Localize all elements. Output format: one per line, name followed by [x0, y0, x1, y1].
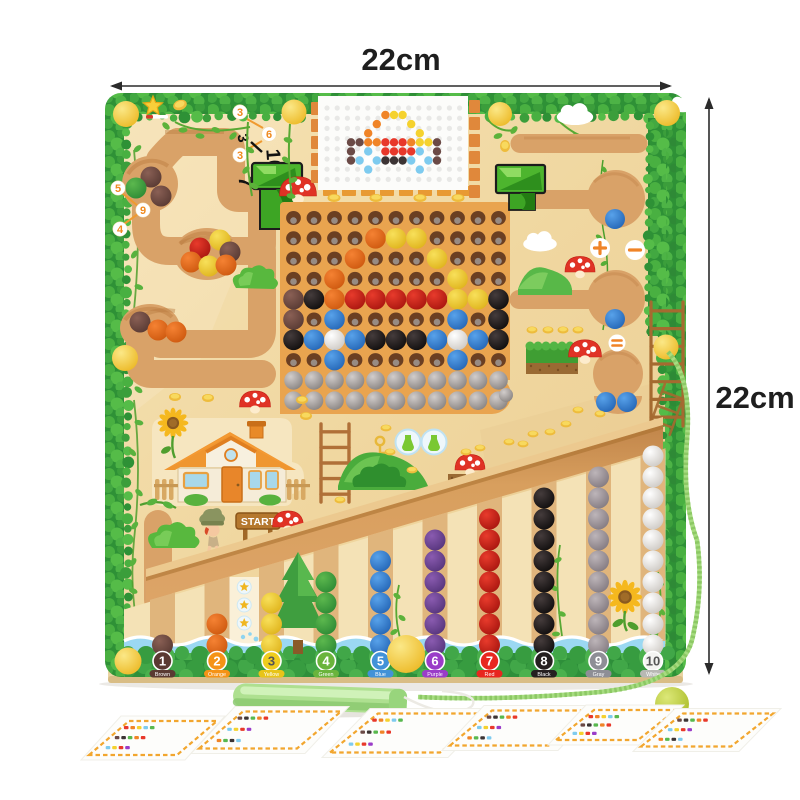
svg-text:1: 1 [159, 654, 166, 669]
svg-text:Gray: Gray [593, 672, 605, 678]
svg-text:Red: Red [485, 672, 495, 678]
svg-text:4: 4 [322, 654, 330, 669]
svg-text:Orange: Orange [208, 672, 226, 678]
svg-text:3: 3 [237, 150, 243, 162]
svg-text:6: 6 [431, 654, 438, 669]
svg-text:7: 7 [486, 654, 493, 669]
svg-text:8: 8 [540, 654, 547, 669]
svg-text:2: 2 [213, 654, 220, 669]
svg-text:22cm: 22cm [715, 380, 794, 415]
svg-text:START: START [241, 516, 276, 528]
svg-text:9: 9 [140, 205, 146, 217]
svg-text:5: 5 [377, 654, 384, 669]
svg-text:3: 3 [237, 107, 243, 119]
svg-text:5: 5 [115, 183, 121, 195]
svg-text:22cm: 22cm [361, 42, 440, 77]
svg-text:3: 3 [268, 654, 275, 669]
svg-text:Purple: Purple [427, 672, 443, 678]
svg-text:10: 10 [646, 654, 660, 669]
svg-text:4: 4 [117, 224, 124, 236]
svg-text:Black: Black [537, 672, 550, 678]
svg-text:6: 6 [266, 129, 272, 141]
svg-text:9: 9 [595, 654, 602, 669]
svg-text:Brown: Brown [155, 672, 170, 678]
svg-text:Green: Green [319, 672, 334, 678]
svg-text:Blue: Blue [375, 672, 386, 678]
svg-text:Yellow: Yellow [264, 672, 279, 678]
